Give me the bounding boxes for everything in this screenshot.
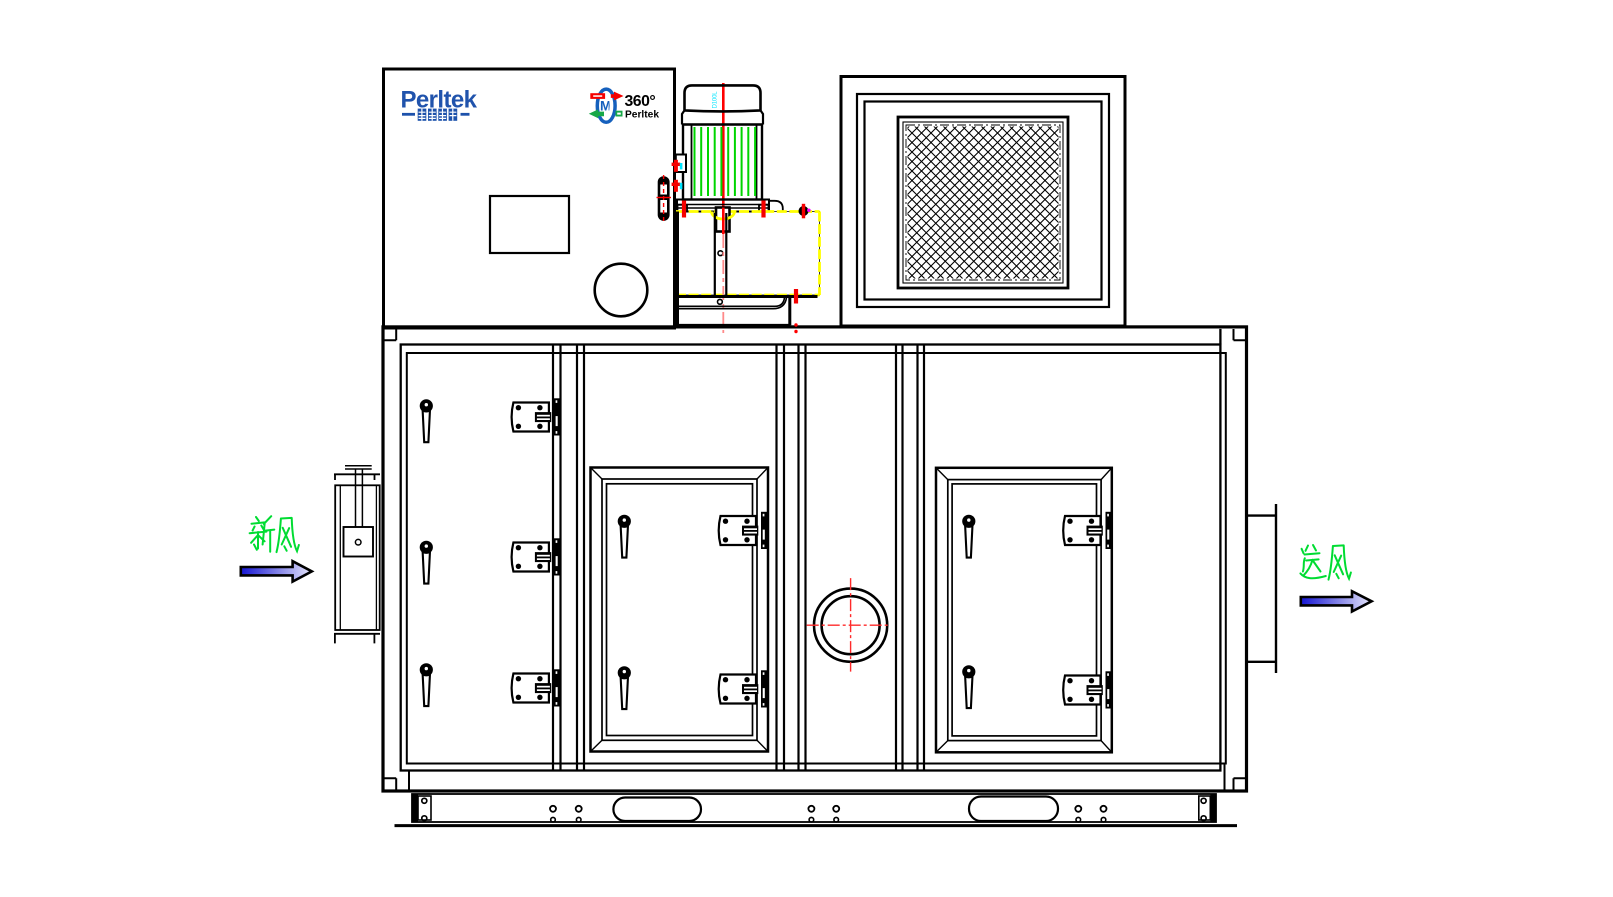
svg-text:Perltek: Perltek — [625, 109, 659, 120]
svg-text:D100L: D100L — [713, 91, 719, 109]
svg-text:360°: 360° — [625, 93, 656, 110]
